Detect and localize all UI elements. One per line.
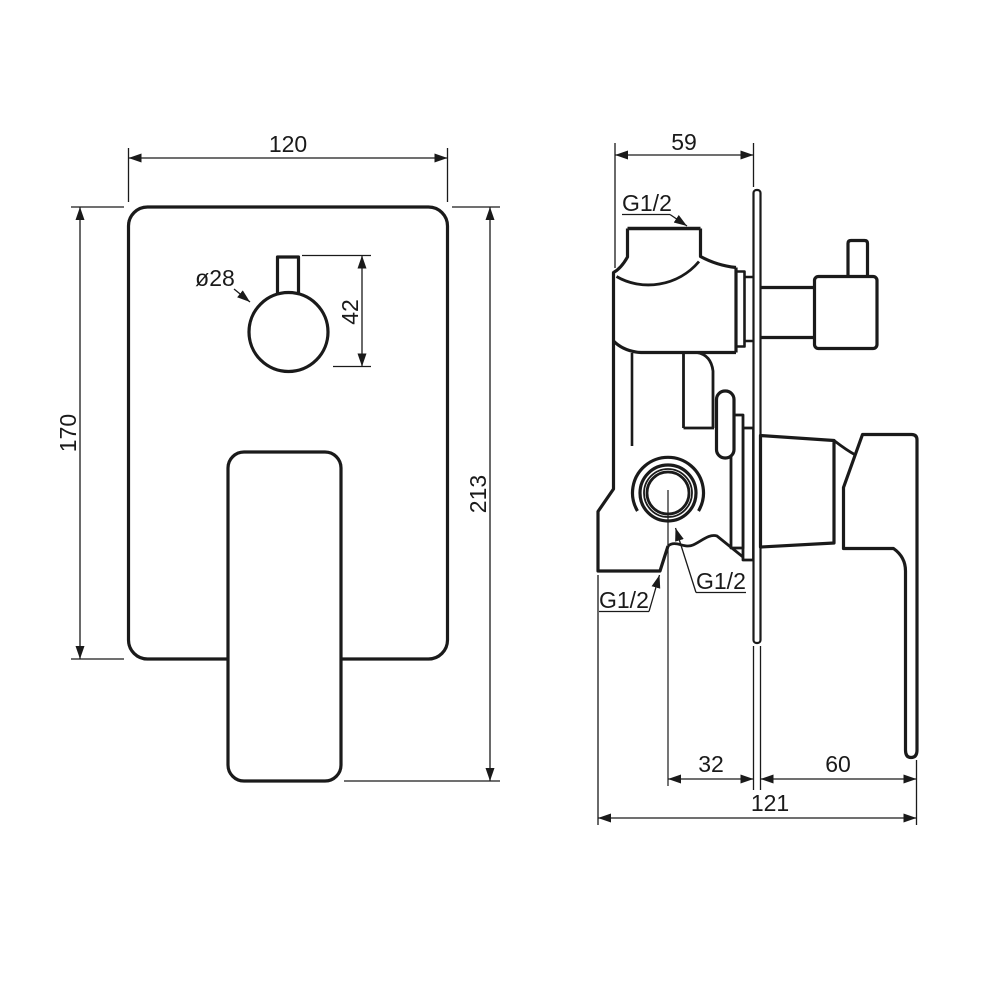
front-view: 120 170 213 42 ø28 xyxy=(55,131,500,781)
cartridge-body xyxy=(761,436,835,548)
dim-port-offset-label: 32 xyxy=(698,751,724,777)
dim-plate-width-label: 120 xyxy=(269,131,307,157)
mounting-step-connector xyxy=(736,272,754,347)
dim-depth-label: 59 xyxy=(671,129,697,155)
technical-drawing-canvas: { "front": { "width": "120", "height": "… xyxy=(0,0,1000,1000)
knob-diameter-label: ø28 xyxy=(195,265,235,291)
thread-bottom-label: G1/2 xyxy=(599,587,649,613)
knob-shaft-side xyxy=(761,288,815,338)
knob-circle-front xyxy=(249,293,328,372)
port-body-saddle-curve xyxy=(617,262,700,285)
wall-flange-bar xyxy=(743,428,754,560)
dim-plate-height-label: 170 xyxy=(55,414,81,452)
diverter-capsule xyxy=(717,391,735,458)
knob-stem-side xyxy=(848,241,868,277)
mixer-valve-drawing: 120 170 213 42 ø28 xyxy=(0,0,1000,1000)
dim-knob-height-label: 42 xyxy=(337,299,363,325)
trim-plate-side xyxy=(754,190,761,643)
top-port-right-edge xyxy=(701,229,737,268)
dim-handle-depth-label: 60 xyxy=(825,751,851,777)
cartridge-fillet-curve xyxy=(834,441,856,456)
thread-side-leader xyxy=(676,528,697,593)
dim-total-height-label: 213 xyxy=(465,475,491,513)
lever-handle-front xyxy=(228,452,341,781)
dim-total-depth-label: 121 xyxy=(751,790,789,816)
knob-body-side xyxy=(815,277,878,349)
body-block-bottom-edge xyxy=(614,341,737,353)
body-neck xyxy=(684,353,715,429)
lever-handle-side xyxy=(844,435,918,758)
side-view: 59 32 60 121 G1/2 G1/2 G1/2 xyxy=(598,129,917,825)
thread-top-label: G1/2 xyxy=(622,190,672,216)
thread-bottom-leader xyxy=(649,575,660,612)
thread-top-leader xyxy=(670,215,687,227)
thread-side-label: G1/2 xyxy=(696,568,746,594)
